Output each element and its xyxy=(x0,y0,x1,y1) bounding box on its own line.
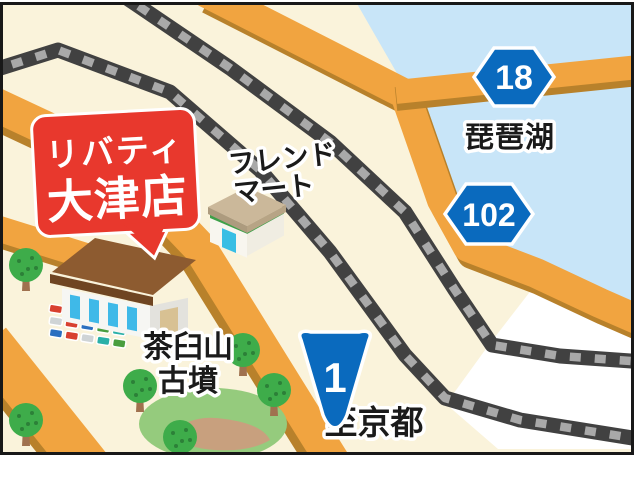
route-badge-18-number: 18 xyxy=(495,59,533,97)
map-screenshot: リバティ 大津店 フレンド マート 琵琶湖 茶臼山 古墳 至京都 18 102 xyxy=(0,0,640,480)
store-name-line1: リバティ xyxy=(45,129,185,173)
map-frame: リバティ 大津店 フレンド マート 琵琶湖 茶臼山 古墳 至京都 18 102 xyxy=(0,2,634,455)
route-badge-102-number: 102 xyxy=(462,197,515,233)
route-badge-102: 102 xyxy=(445,184,533,244)
kofun-label-line1: 茶臼山 xyxy=(143,331,233,364)
kofun-label-line2: 古墳 xyxy=(158,365,218,398)
route-badge-18: 18 xyxy=(474,48,554,106)
route-badge-1-number: 1 xyxy=(323,354,346,401)
map-canvas: リバティ 大津店 フレンド マート 琵琶湖 茶臼山 古墳 至京都 18 102 xyxy=(3,5,631,452)
lake-biwa-label: 琵琶湖 xyxy=(465,121,555,154)
store-name-line2: 大津店 xyxy=(46,169,190,228)
